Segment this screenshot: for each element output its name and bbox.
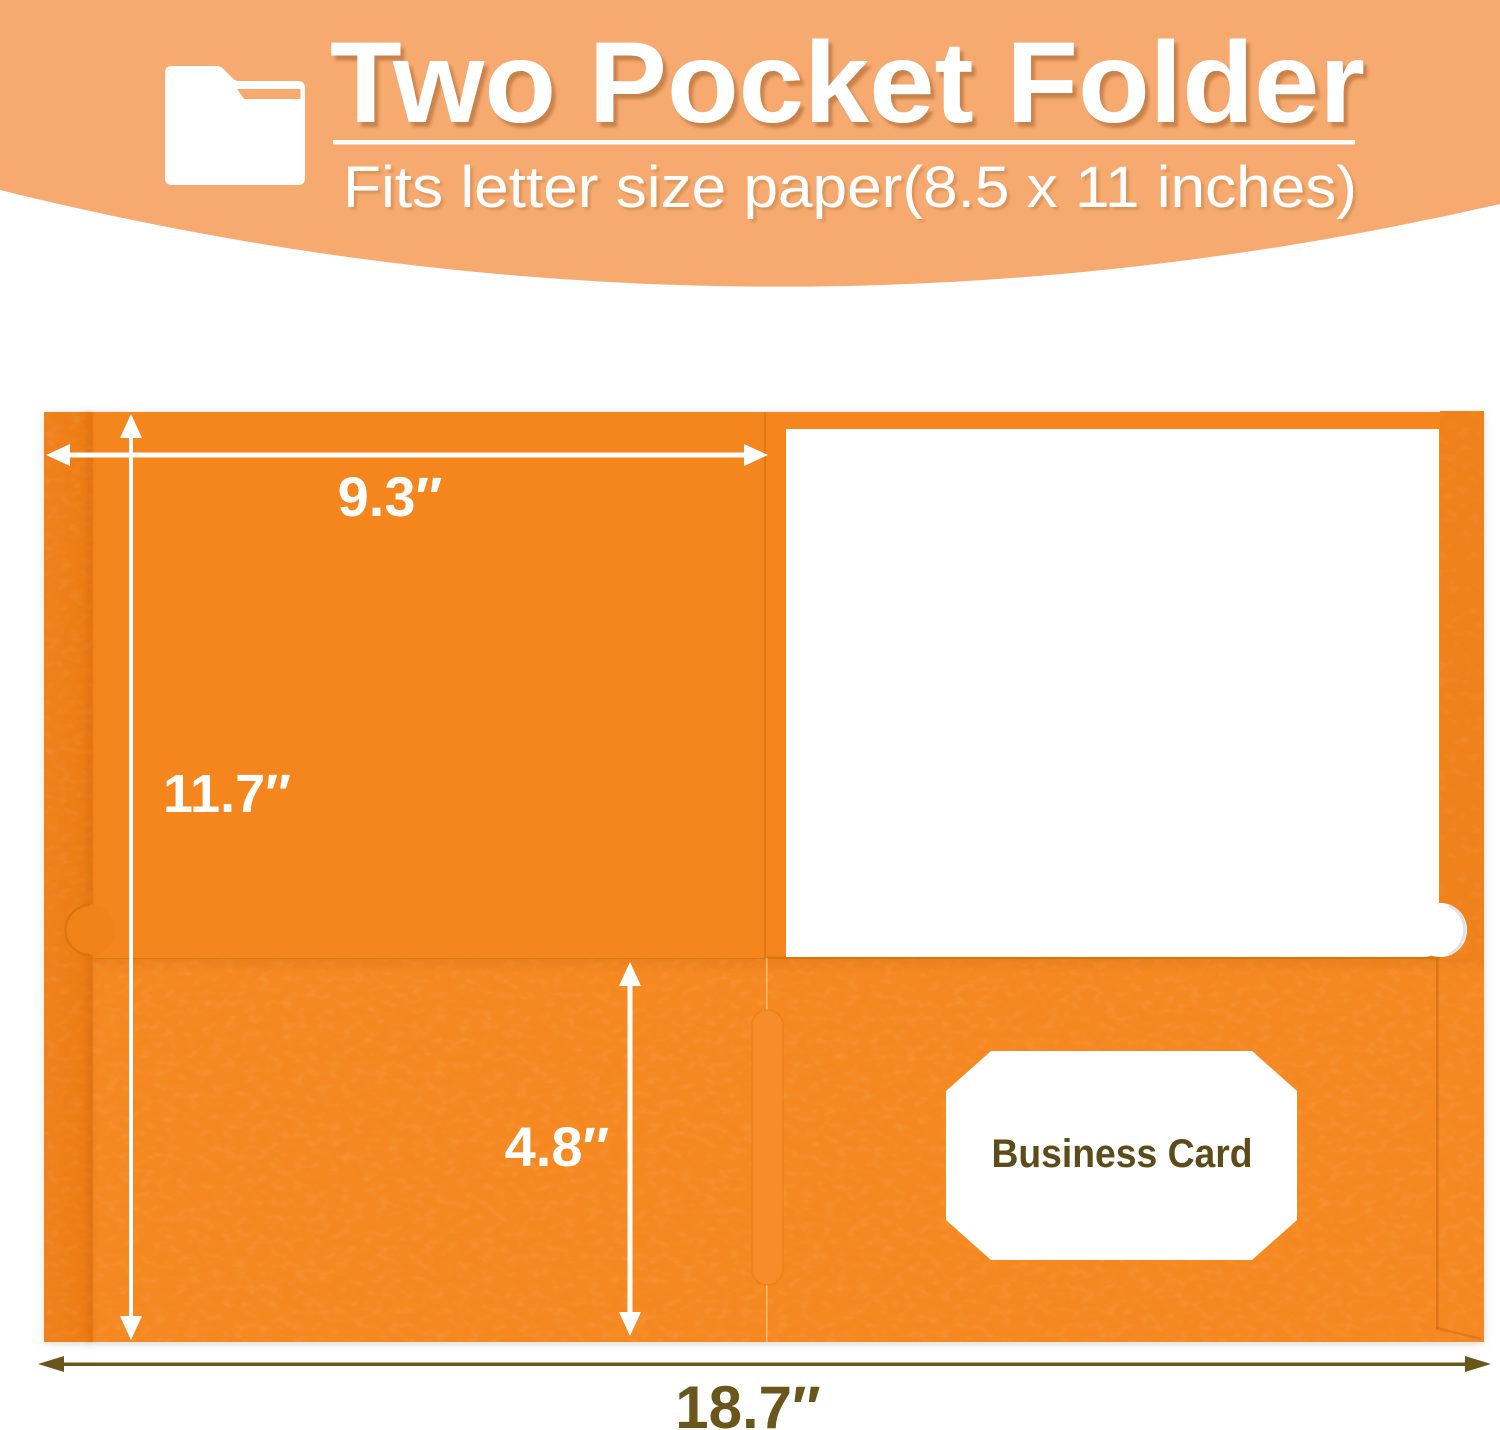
svg-text:4.8″: 4.8″ (505, 1115, 610, 1178)
svg-text:Fits letter size paper(8.5 x 1: Fits letter size paper(8.5 x 11 inches) (343, 155, 1357, 220)
svg-text:9.3″: 9.3″ (338, 465, 443, 528)
svg-text:Two Pocket Folder: Two Pocket Folder (330, 19, 1365, 147)
svg-text:18.7″: 18.7″ (675, 1374, 821, 1430)
svg-text:11.7″: 11.7″ (163, 764, 291, 824)
svg-text:Business Card: Business Card (992, 1132, 1253, 1176)
